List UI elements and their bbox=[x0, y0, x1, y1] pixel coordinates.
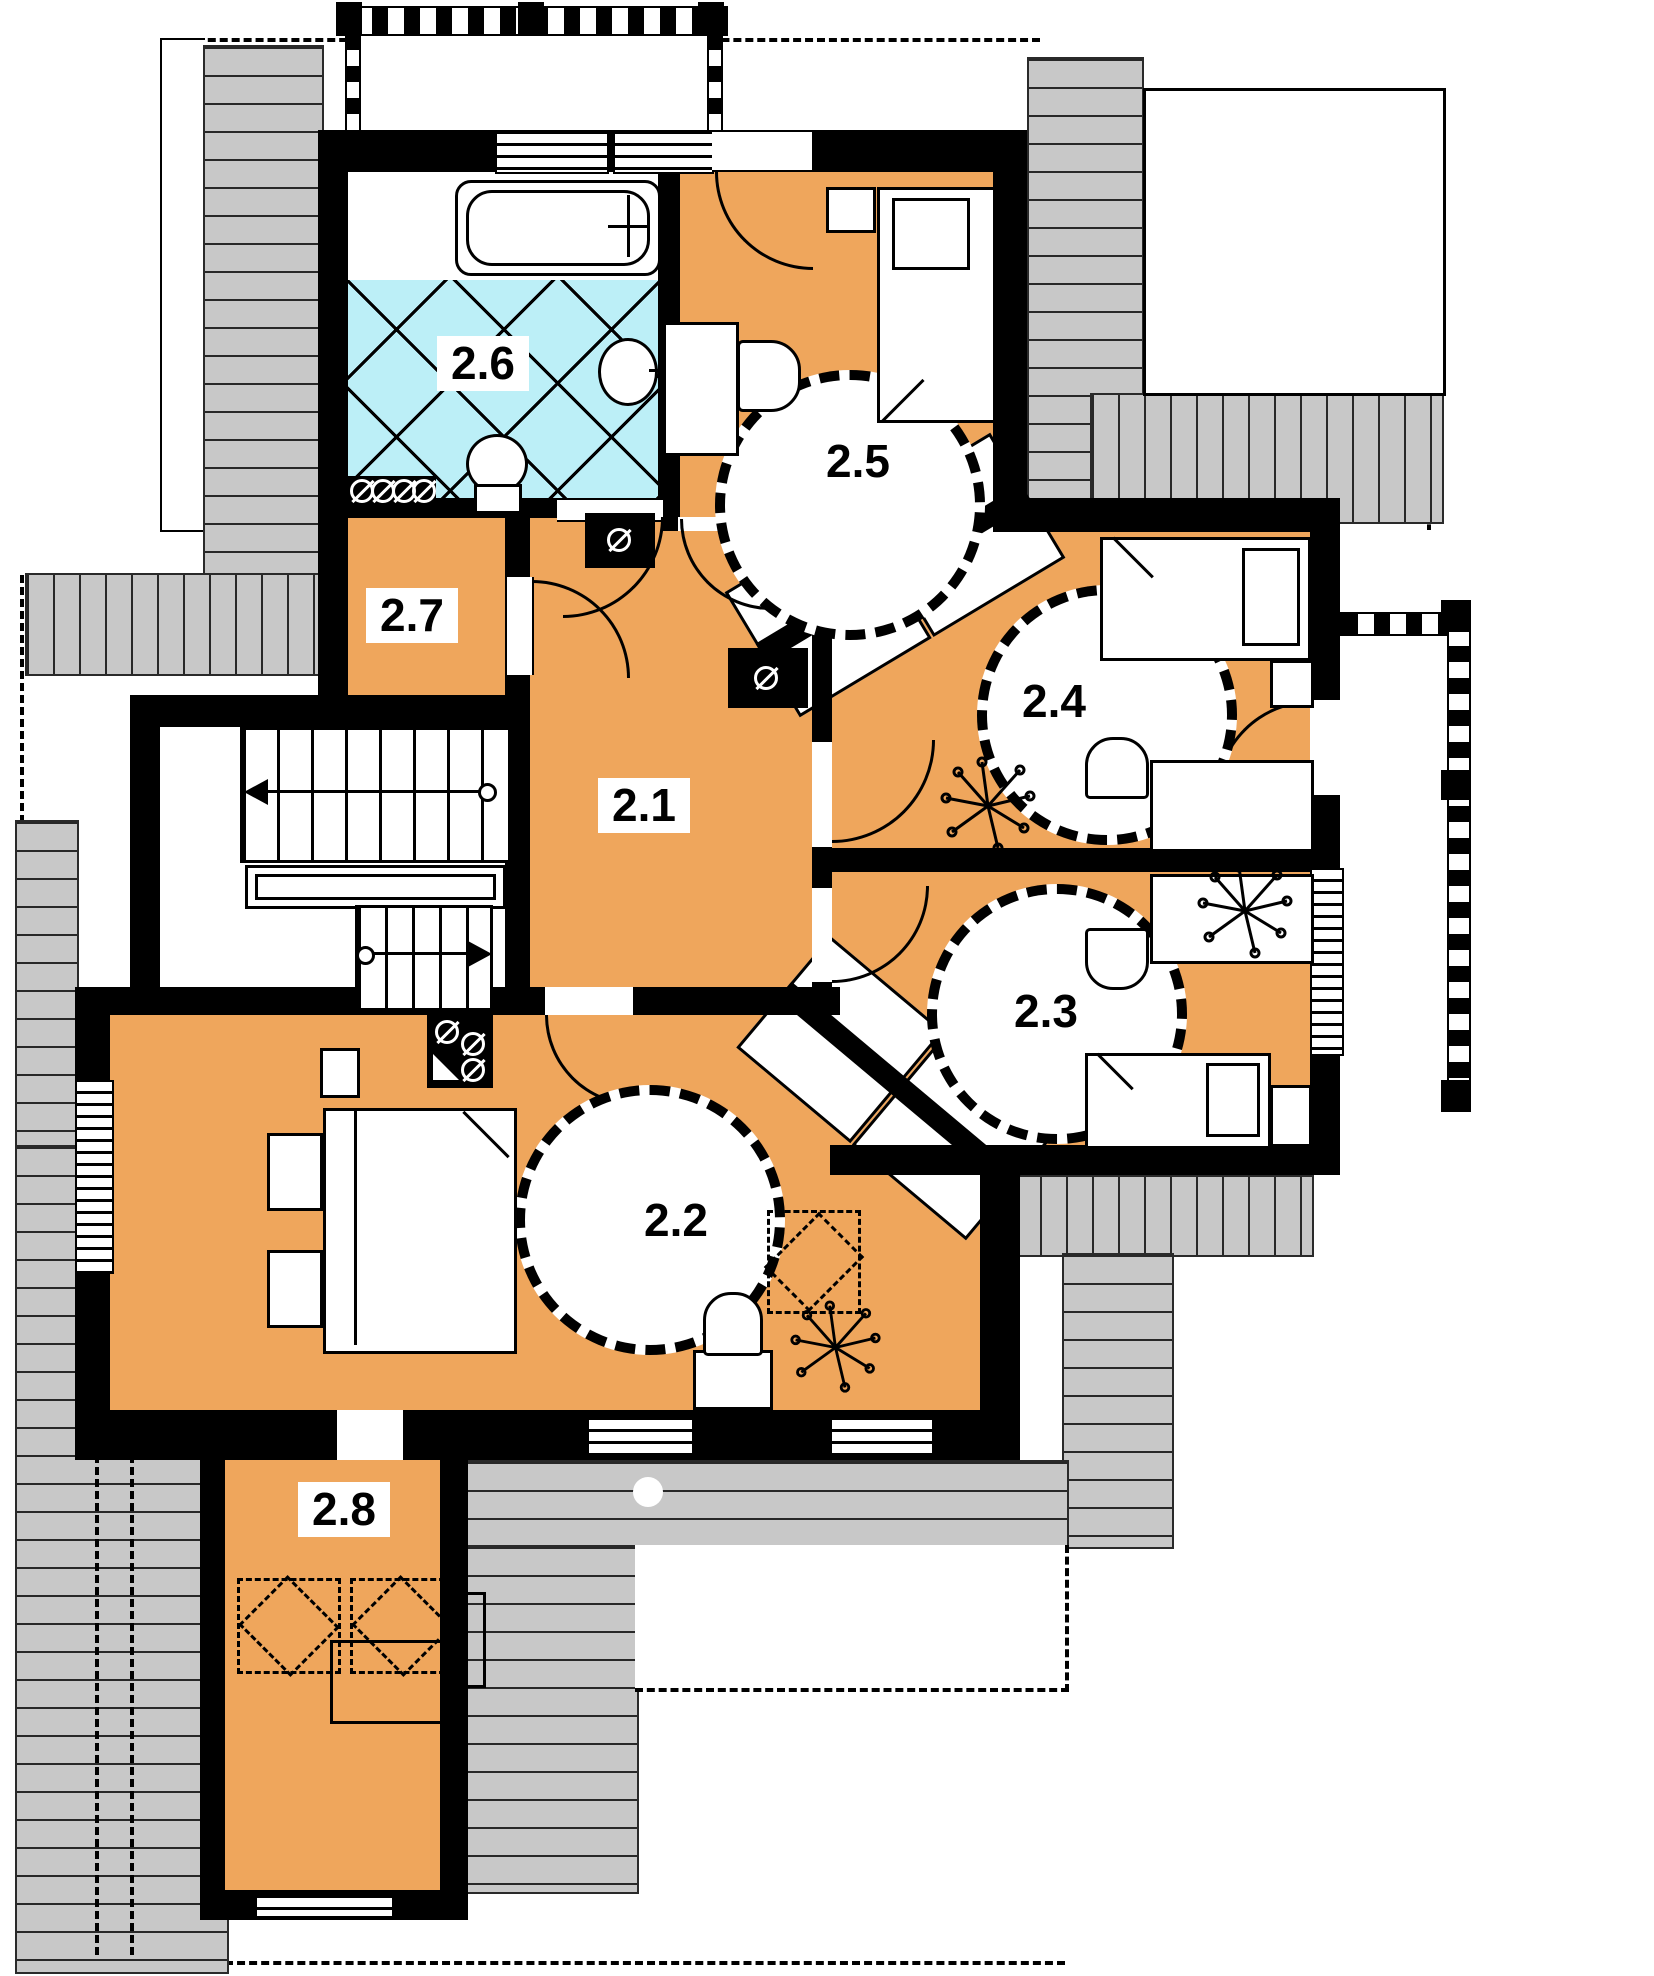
bed-2-2 bbox=[323, 1108, 517, 1354]
stairs-arrow-line-down bbox=[365, 952, 473, 955]
toilet-tank bbox=[474, 484, 522, 514]
roof-strip-right-lower bbox=[1062, 1253, 1174, 1549]
sink bbox=[598, 338, 658, 406]
wall-2-7-bottom bbox=[130, 695, 530, 727]
window-2-2-bottom-2 bbox=[830, 1418, 934, 1456]
stairs-arrow-dot-left bbox=[356, 946, 375, 965]
radiator-bathroom bbox=[348, 476, 436, 508]
window-2-2-left bbox=[75, 1080, 114, 1274]
balcony-right-railing bbox=[1447, 612, 1471, 1111]
chair-2-3 bbox=[1085, 928, 1149, 990]
chair-2-4 bbox=[1085, 737, 1149, 799]
table-dashed-2-2 bbox=[767, 1210, 861, 1314]
bed-2-3 bbox=[1085, 1053, 1271, 1149]
window-2-2-bottom-1 bbox=[587, 1418, 694, 1456]
stairs-arrowhead-right bbox=[468, 941, 492, 967]
balcony-right-post-mid bbox=[1441, 770, 1471, 800]
plant-icon-2-3 bbox=[1195, 861, 1295, 961]
balcony-top-post-right bbox=[698, 2, 724, 36]
wall-2-3-bottom bbox=[830, 1145, 1310, 1175]
room-label-2-6: 2.6 bbox=[437, 336, 529, 391]
window-2-8-bottom bbox=[255, 1896, 394, 1918]
desk-2-4 bbox=[1150, 760, 1314, 852]
roof-left-lower-narrow bbox=[15, 820, 79, 1149]
nightstand-2-4 bbox=[1270, 660, 1314, 708]
wall-2-8-left bbox=[200, 1425, 225, 1920]
room-label-2-5: 2.5 bbox=[812, 434, 904, 489]
window-2-5 bbox=[613, 132, 714, 174]
desk-2-5 bbox=[663, 322, 739, 456]
balcony-right-post-bottom bbox=[1441, 1080, 1471, 1112]
balcony-top-post-left bbox=[336, 2, 362, 36]
chair-2-5 bbox=[737, 340, 801, 412]
nightstand-2-2-b bbox=[267, 1250, 323, 1328]
window-2-3-right bbox=[1310, 868, 1344, 1056]
door-opening-2-2 bbox=[545, 987, 633, 1015]
roof-edge-topleft bbox=[160, 38, 205, 532]
wall-left-upper bbox=[318, 130, 348, 720]
stairs-arrow-line-up bbox=[255, 790, 490, 793]
storage-dashed-2-8-a bbox=[237, 1578, 341, 1674]
balcony-top-rail-right bbox=[707, 32, 723, 134]
wall-right-outer bbox=[1310, 498, 1340, 1175]
terrace-bottom bbox=[635, 1545, 1069, 1692]
desk-2-2 bbox=[693, 1350, 773, 1410]
stairs-railing bbox=[245, 865, 506, 909]
bed-2-4 bbox=[1100, 537, 1311, 661]
vent-block-hall-top bbox=[585, 513, 655, 568]
door-opening-2-4 bbox=[812, 740, 832, 849]
wall-stair-left bbox=[130, 695, 160, 1015]
door-opening-2-7 bbox=[505, 577, 534, 675]
stairs-arrowhead-left bbox=[244, 779, 268, 805]
room-label-2-7: 2.7 bbox=[366, 588, 458, 643]
roof-strip-topleft bbox=[203, 45, 324, 577]
plant-icon-2-2 bbox=[788, 1300, 883, 1395]
chimney-pot bbox=[633, 1477, 663, 1507]
balcony-top-post-mid bbox=[518, 2, 544, 36]
door-opening-2-3 bbox=[812, 886, 832, 984]
wall-2-4-top bbox=[993, 498, 1340, 532]
terrace-topright bbox=[1143, 88, 1446, 396]
room-label-2-8: 2.8 bbox=[298, 1482, 390, 1537]
floor-plan: 2.1 2.2 2.3 2.4 2.5 2.6 2.7 2.8 bbox=[0, 0, 1654, 1976]
balcony-top-rail-left bbox=[345, 32, 361, 134]
storage-box-2-8-side bbox=[440, 1592, 486, 1688]
room-label-2-4: 2.4 bbox=[1008, 674, 1100, 729]
balcony-right-post-top bbox=[1441, 600, 1471, 632]
balcony-top-floor bbox=[345, 32, 719, 130]
vent-block-hall-right bbox=[728, 648, 808, 708]
nightstand-2-5 bbox=[826, 187, 876, 233]
plant-icon-2-4 bbox=[938, 756, 1038, 856]
nightstand-2-3 bbox=[1270, 1085, 1312, 1147]
wall-2-2-right bbox=[980, 1150, 1020, 1430]
roof-band-left bbox=[25, 573, 324, 676]
room-label-2-2: 2.2 bbox=[630, 1193, 722, 1248]
roof-band-bottom bbox=[380, 1460, 1069, 1549]
room-label-2-3: 2.3 bbox=[1000, 984, 1092, 1039]
bed-2-5 bbox=[877, 187, 996, 423]
room-label-2-1: 2.1 bbox=[598, 778, 690, 833]
wall-2-5-right bbox=[993, 165, 1027, 498]
stairs-upper-flight bbox=[240, 727, 511, 863]
vent-block-2-2 bbox=[427, 1008, 493, 1088]
storage-box-2-8 bbox=[330, 1640, 444, 1724]
stool-2-2 bbox=[320, 1048, 360, 1098]
door-opening-2-8 bbox=[337, 1410, 403, 1460]
door-opening-2-4-balcony bbox=[1310, 700, 1340, 795]
door-opening-2-5-balcony bbox=[712, 132, 812, 170]
nightstand-2-2-a bbox=[267, 1133, 323, 1211]
stairs-arrow-dot-right bbox=[478, 783, 497, 802]
bathtub bbox=[455, 180, 661, 276]
chair-2-2 bbox=[703, 1292, 763, 1356]
window-bathroom bbox=[495, 132, 609, 174]
